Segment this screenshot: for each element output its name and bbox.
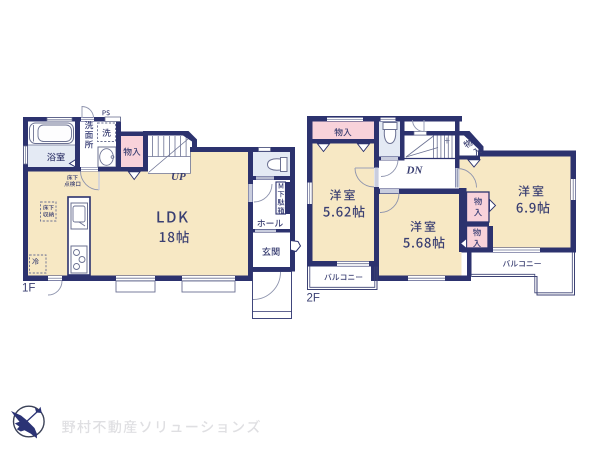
svg-text:UP: UP <box>171 171 186 183</box>
svg-text:DN: DN <box>406 165 424 177</box>
svg-text:1F: 1F <box>22 283 35 295</box>
svg-text:2F: 2F <box>307 293 320 305</box>
